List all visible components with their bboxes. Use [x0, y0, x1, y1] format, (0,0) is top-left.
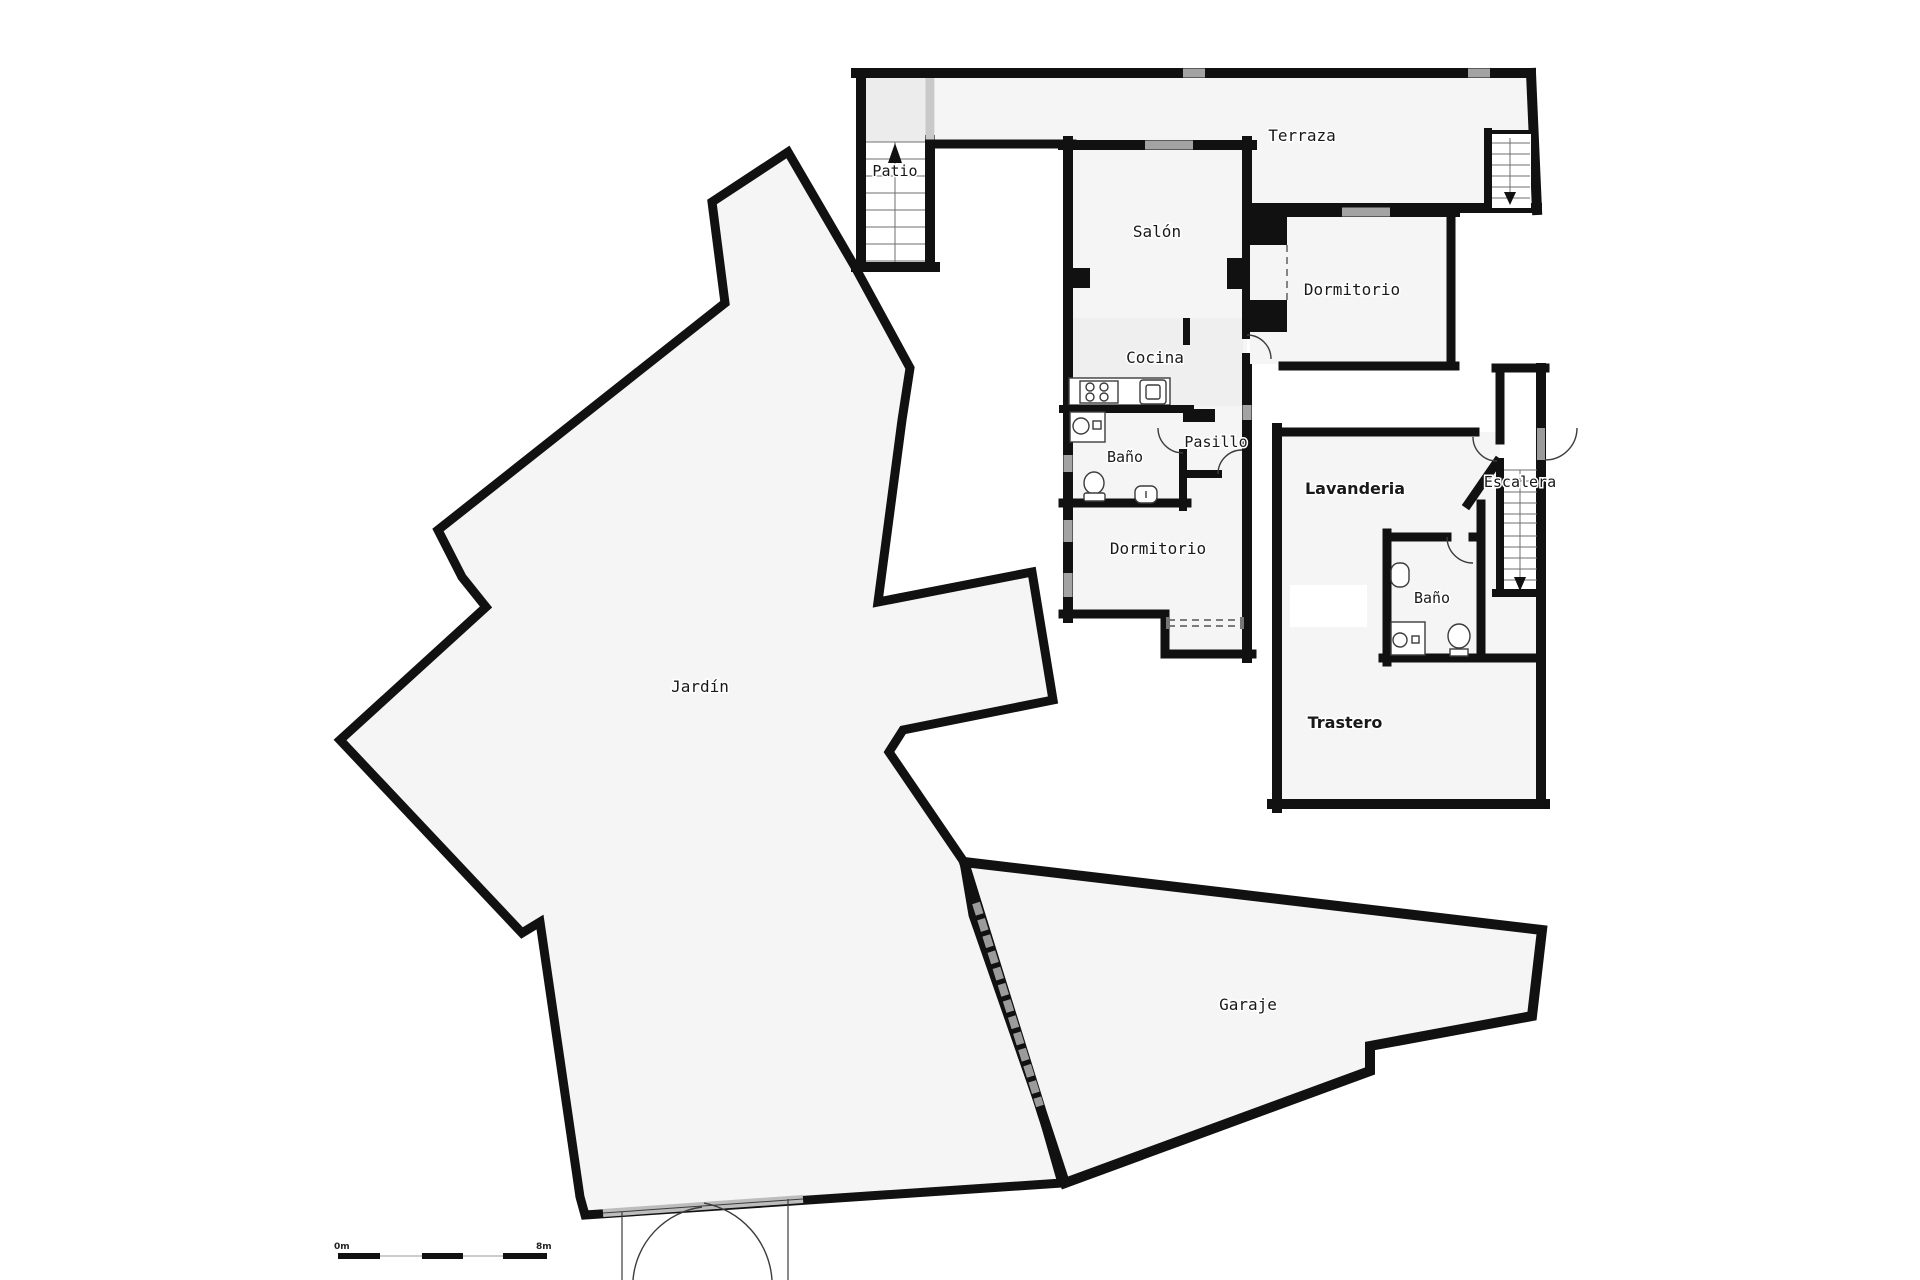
label-bano-central: Baño [1107, 448, 1143, 466]
label-jardin: Jardín [671, 677, 729, 696]
scale-bar-end-label: 8m [536, 1242, 552, 1252]
sink-icon [1140, 380, 1166, 404]
bano-der-shower-unit [1391, 622, 1425, 655]
garden-gate-arc-left [633, 1207, 702, 1280]
garaje-area [964, 862, 1542, 1183]
scale-bar: 0m 8m [334, 1242, 552, 1259]
dorm-sup-wall-left-lower [1250, 300, 1287, 332]
garaje-outline [964, 862, 1542, 1183]
garden-gate-arc-right [704, 1203, 772, 1280]
label-lavanderia: Lavanderia [1305, 479, 1405, 498]
floorplan-svg: 0m 8m Patio Terraza Salón Dormitorio Coc… [0, 0, 1920, 1280]
salon-column-left [1068, 268, 1090, 288]
floorplan-canvas: 0m 8m Patio Terraza Salón Dormitorio Coc… [0, 0, 1920, 1280]
sliding-door-cap-right [1240, 617, 1244, 629]
label-pasillo: Pasillo [1184, 433, 1247, 451]
white-patch [1290, 585, 1367, 627]
dorm-sup-wall-left-upper [1250, 212, 1287, 245]
label-patio: Patio [872, 162, 917, 180]
label-garaje: Garaje [1219, 995, 1277, 1014]
washbasin-unit [1070, 412, 1105, 442]
scale-bar-seg-2 [422, 1253, 463, 1259]
sliding-door-cap-left [1166, 617, 1170, 629]
toilet-central [1084, 472, 1104, 494]
label-escalera: Escalera [1484, 473, 1556, 491]
label-bano-derecho: Baño [1414, 589, 1450, 607]
scale-bar-start-label: 0m [334, 1242, 350, 1252]
bano-der-sink [1391, 563, 1409, 587]
stove-icon [1080, 381, 1118, 403]
pasillo-wall-stub [1183, 409, 1215, 422]
cocina-wall-stub [1183, 318, 1190, 345]
central-block [1063, 141, 1252, 658]
label-cocina: Cocina [1126, 348, 1184, 367]
escalera-exterior-door-leaf [1537, 428, 1545, 460]
label-trastero: Trastero [1308, 713, 1383, 732]
terraza-wall-right [1531, 73, 1537, 210]
jardin-area [340, 152, 1062, 1280]
lavanderia-trastero-block [1272, 368, 1577, 808]
label-dormitorio-central: Dormitorio [1110, 539, 1206, 558]
escalera-exterior-door-arc [1545, 428, 1577, 460]
toilet-central-tank [1084, 493, 1105, 501]
patio-upper-floor [861, 73, 930, 142]
scale-bar-seg-3 [503, 1253, 547, 1259]
label-salon: Salón [1133, 222, 1181, 241]
scale-bar-seg-1 [338, 1253, 380, 1259]
bano-der-toilet-base [1450, 649, 1468, 656]
label-dormitorio-superior: Dormitorio [1304, 280, 1400, 299]
salon-column-right [1227, 258, 1247, 289]
bano-der-toilet [1448, 624, 1470, 648]
label-terraza: Terraza [1268, 126, 1335, 145]
